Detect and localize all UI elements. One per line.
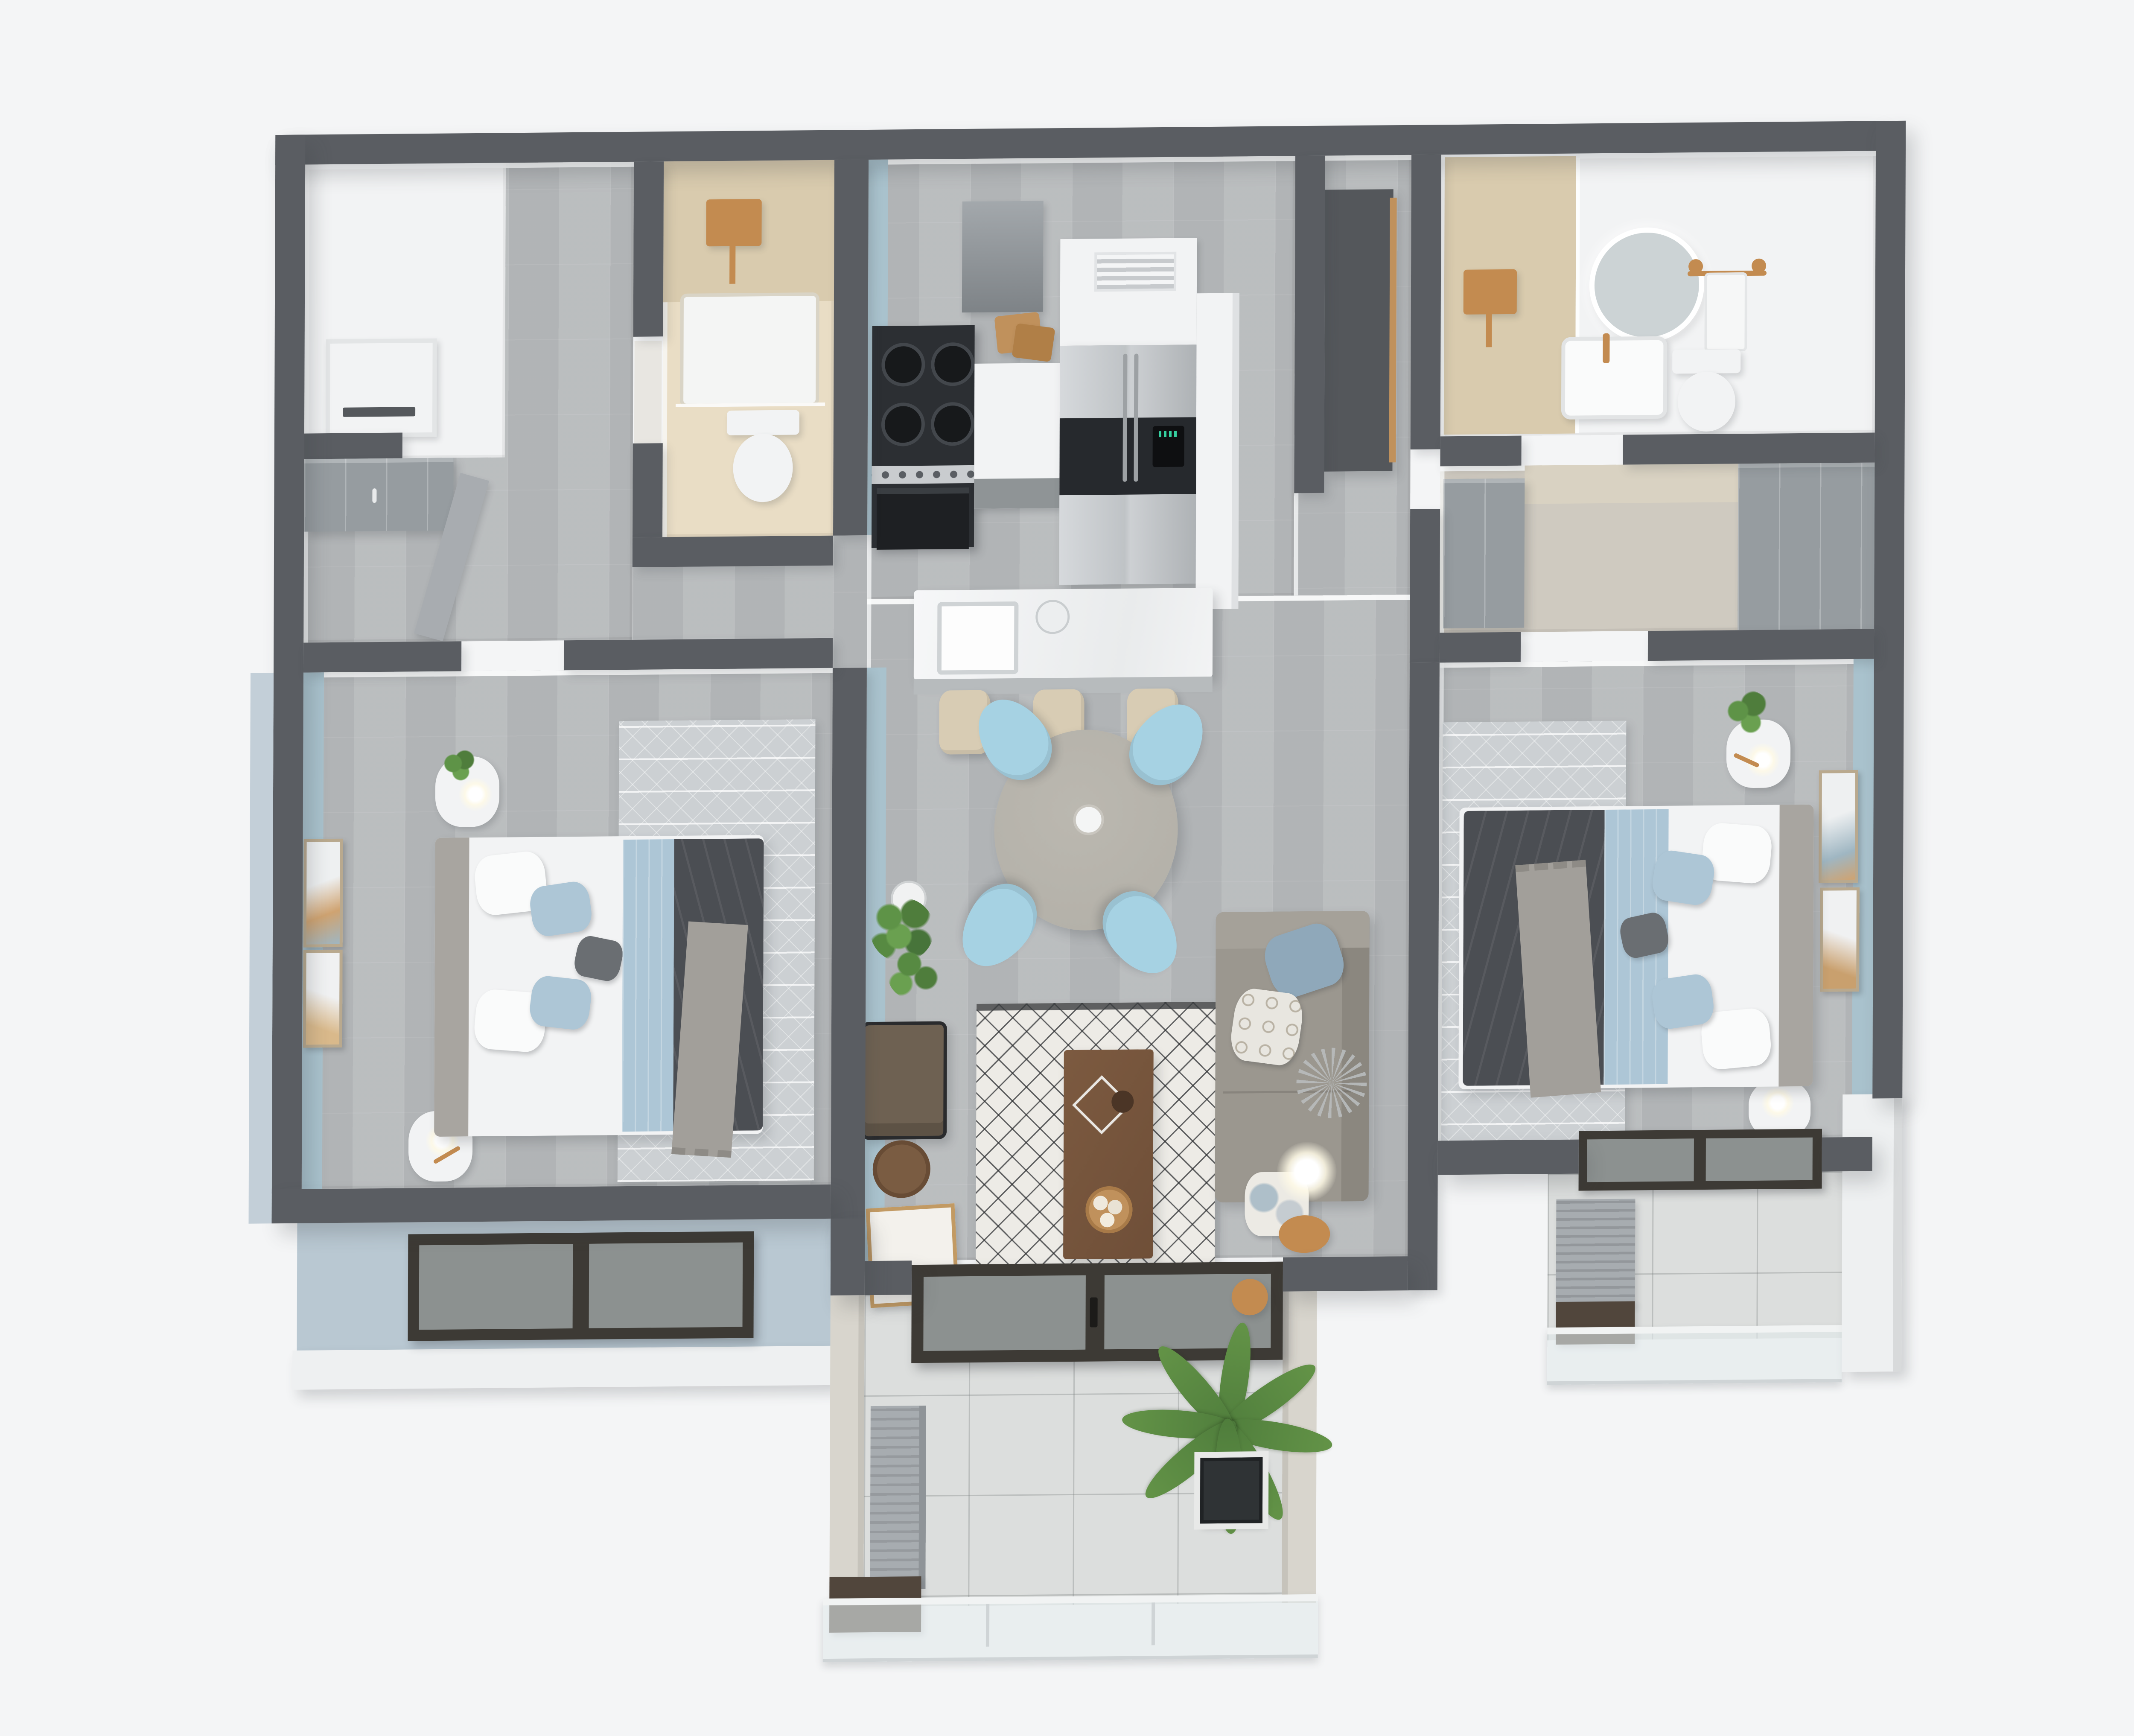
bedroom2-wall-frame-1	[1819, 770, 1858, 883]
bed1-pillow-dark	[572, 934, 626, 983]
cutting-board-2	[1012, 323, 1055, 362]
stove-controls	[872, 465, 974, 484]
shower-arm-2	[729, 245, 735, 284]
wall-living-bedroom2	[1408, 662, 1440, 1290]
bed1-pillow-blue-1	[528, 880, 594, 938]
shower-tray-2	[680, 292, 819, 407]
balcony2-side-wall	[1842, 1094, 1902, 1372]
balcony-railing	[823, 1594, 1318, 1662]
closet-back-panel	[1525, 464, 1738, 504]
floor-plan-render	[0, 0, 2134, 1736]
wall-living-south-a	[865, 1260, 912, 1295]
wall-hall-bath1-b	[1410, 509, 1440, 663]
wall-entry-bathroom2-b	[633, 443, 663, 537]
shower-head-plate-2	[706, 199, 761, 246]
toilet1-tank	[1672, 349, 1740, 373]
balcony-plant	[1107, 1304, 1347, 1587]
bedroom1-window	[408, 1231, 754, 1341]
bed1-pillow-blue-2	[528, 974, 593, 1031]
wall-closet-bedroom2-a	[1440, 632, 1521, 663]
living-plant-leaves-2	[887, 945, 942, 1001]
vanity-sink	[1561, 336, 1668, 420]
shower-head-plate-1	[1463, 269, 1517, 315]
corridor-floor	[632, 565, 867, 640]
bedroom1-window-pane-1	[419, 1244, 573, 1330]
toilet2-tank	[727, 410, 799, 435]
island-sink	[937, 601, 1019, 675]
bed2-pillow-blue-2	[1650, 972, 1716, 1031]
wall-entry-bedroom1-b	[564, 638, 833, 671]
living-plant	[870, 867, 956, 1009]
kitchen-partition	[1195, 293, 1239, 609]
balcony2-ac-unit	[1556, 1199, 1635, 1306]
bedroom2-window-pane-1	[1587, 1138, 1694, 1182]
wall-entry-bedroom1-a	[303, 641, 461, 672]
entry-wardrobe-handle	[372, 488, 376, 503]
bedroom1-wall-frame-1	[303, 839, 343, 948]
fridge-dispenser-display	[1159, 431, 1178, 437]
balcony2-railing	[1547, 1325, 1842, 1385]
balcony-ac-unit	[870, 1406, 926, 1590]
sofa-pillow-pattern	[1228, 986, 1306, 1067]
pantry-cabinet	[1324, 189, 1393, 471]
table-vase	[1111, 1091, 1134, 1113]
vent-grille	[1094, 252, 1176, 292]
bedroom1-bed	[434, 835, 764, 1137]
sliding-door-handle	[1090, 1297, 1097, 1327]
closet-wardrobe-right	[1738, 462, 1875, 630]
wall-bedroom2-south-a	[1438, 1140, 1579, 1175]
wall-entry-bathroom2	[633, 161, 664, 337]
shower-arm-1	[1486, 313, 1492, 347]
wall-kitchen-west-upper	[833, 160, 869, 536]
kitchen-counter-front	[974, 478, 1059, 509]
pantry-wood-edge	[1389, 198, 1397, 462]
corridor-pass	[833, 535, 867, 668]
palm-pot	[1200, 1457, 1263, 1523]
sliding-door-pane-1	[923, 1275, 1086, 1351]
wall-bedroom2-south-b	[1822, 1137, 1872, 1172]
coffee-table	[1063, 1049, 1154, 1259]
bedroom2-window-pane-2	[1706, 1138, 1813, 1181]
railing-post-1	[986, 1604, 989, 1647]
range-hood	[962, 201, 1044, 312]
entry-stub-wall	[304, 433, 402, 459]
bed2-pillow-blue-1	[1650, 849, 1717, 907]
wall-left	[272, 135, 306, 1194]
wall-bedroom1-south	[271, 1185, 831, 1223]
lounge-chair	[861, 1021, 947, 1140]
bedroom2-window	[1579, 1129, 1822, 1191]
bathroom2-door	[634, 341, 662, 443]
wall-bath1-closet-a	[1440, 436, 1521, 467]
wall-balcony-corner	[831, 1218, 865, 1295]
facade-left-sliver	[248, 673, 274, 1224]
railing-post-2	[1152, 1602, 1155, 1645]
bedroom1-window-pane-2	[589, 1243, 743, 1328]
wall-bedroom1-east	[831, 668, 867, 1261]
wall-right	[1872, 121, 1906, 1099]
sink-faucet	[1603, 333, 1609, 363]
entry-wall-niche	[326, 338, 437, 438]
bed1-headboard	[434, 837, 469, 1137]
towel	[1704, 272, 1747, 352]
wall-kitchen-east	[1294, 156, 1325, 493]
fridge-handle-right	[1134, 354, 1138, 482]
oven-front	[877, 487, 969, 550]
bedroom2-bed	[1458, 805, 1813, 1089]
fridge-handle-left	[1122, 354, 1127, 482]
wall-closet-bedroom2-b	[1648, 629, 1874, 661]
bed1-blue-blanket	[622, 839, 676, 1132]
wall-hall-bath1-a	[1411, 155, 1441, 449]
bed2-headboard	[1778, 805, 1813, 1087]
wall-bathroom2-south	[633, 536, 833, 567]
bedroom1-facade-base	[292, 1346, 834, 1390]
wall-bath1-closet-b	[1623, 432, 1875, 464]
balcony-left-wall	[829, 1295, 865, 1607]
wall-living-south-b	[1283, 1256, 1408, 1292]
closet-wardrobe-left	[1443, 478, 1525, 629]
entry-niche-slot	[343, 407, 415, 417]
entry-wardrobe	[304, 458, 454, 532]
bedroom1-wall-frame-2	[303, 950, 343, 1048]
bedroom2-wall-frame-2	[1820, 887, 1860, 992]
